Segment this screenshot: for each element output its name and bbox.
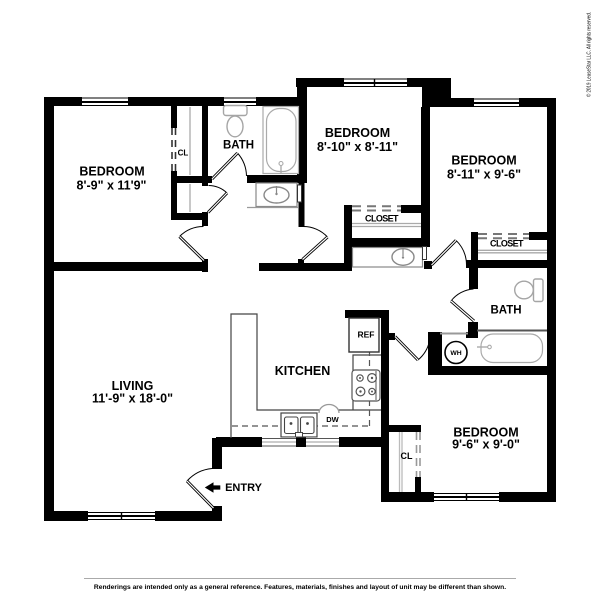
svg-text:BATH: BATH bbox=[223, 140, 254, 152]
svg-text:8'-10" x 8'-11": 8'-10" x 8'-11" bbox=[317, 140, 398, 154]
svg-text:© 2019 LeaseStar LLC. All righ: © 2019 LeaseStar LLC. All rights reserve… bbox=[586, 12, 593, 97]
svg-text:8'-9" x 11'9": 8'-9" x 11'9" bbox=[77, 179, 147, 193]
svg-text:REF: REF bbox=[358, 330, 375, 340]
svg-text:BEDROOM: BEDROOM bbox=[325, 126, 390, 140]
svg-text:11'-9" x 18'-0": 11'-9" x 18'-0" bbox=[92, 392, 173, 406]
svg-text:CL: CL bbox=[178, 149, 189, 158]
svg-text:KITCHEN: KITCHEN bbox=[275, 364, 331, 378]
svg-text:8'-11" x 9'-6": 8'-11" x 9'-6" bbox=[447, 168, 521, 182]
svg-text:BEDROOM: BEDROOM bbox=[451, 154, 516, 168]
svg-text:Renderings are intended only a: Renderings are intended only as a genera… bbox=[94, 584, 506, 591]
svg-text:CLOSET: CLOSET bbox=[365, 214, 399, 224]
svg-text:BATH: BATH bbox=[490, 305, 521, 317]
svg-text:9'-6" x 9'-0": 9'-6" x 9'-0" bbox=[452, 438, 520, 452]
svg-text:WH: WH bbox=[450, 350, 461, 357]
svg-text:CLOSET: CLOSET bbox=[490, 239, 524, 249]
svg-text:ENTRY: ENTRY bbox=[225, 482, 263, 494]
svg-text:CL: CL bbox=[401, 451, 413, 461]
svg-text:BEDROOM: BEDROOM bbox=[79, 165, 144, 179]
svg-text:DW: DW bbox=[326, 415, 339, 424]
